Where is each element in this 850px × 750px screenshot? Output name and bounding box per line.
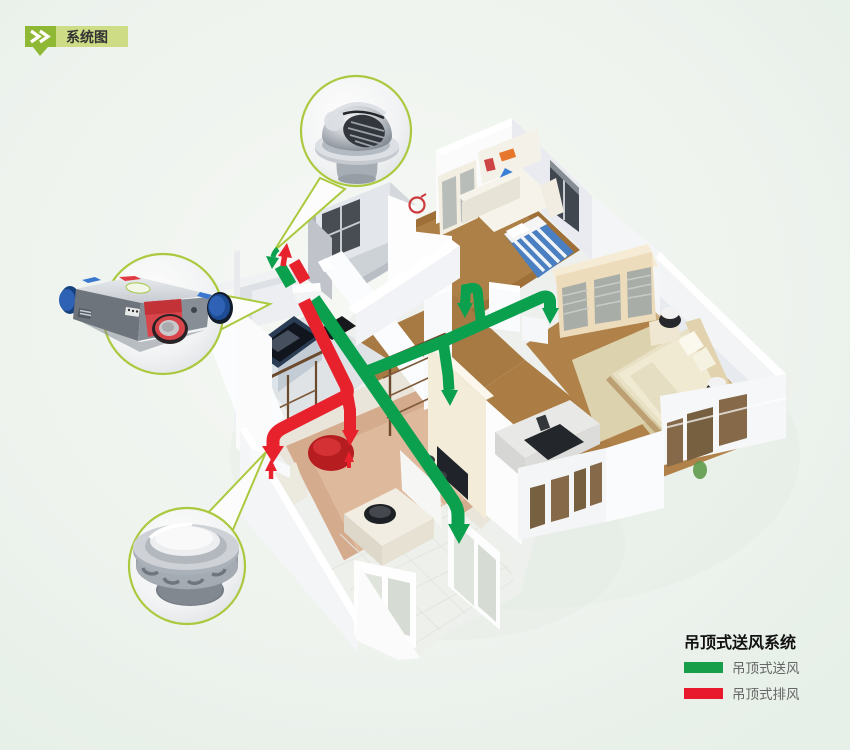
svg-text:吊顶式排风: 吊顶式排风 bbox=[732, 687, 800, 702]
svg-text:系统图: 系统图 bbox=[66, 29, 108, 45]
svg-text:吊顶式送风系统: 吊顶式送风系统 bbox=[684, 633, 796, 652]
svg-text:吊顶式送风: 吊顶式送风 bbox=[732, 661, 800, 676]
